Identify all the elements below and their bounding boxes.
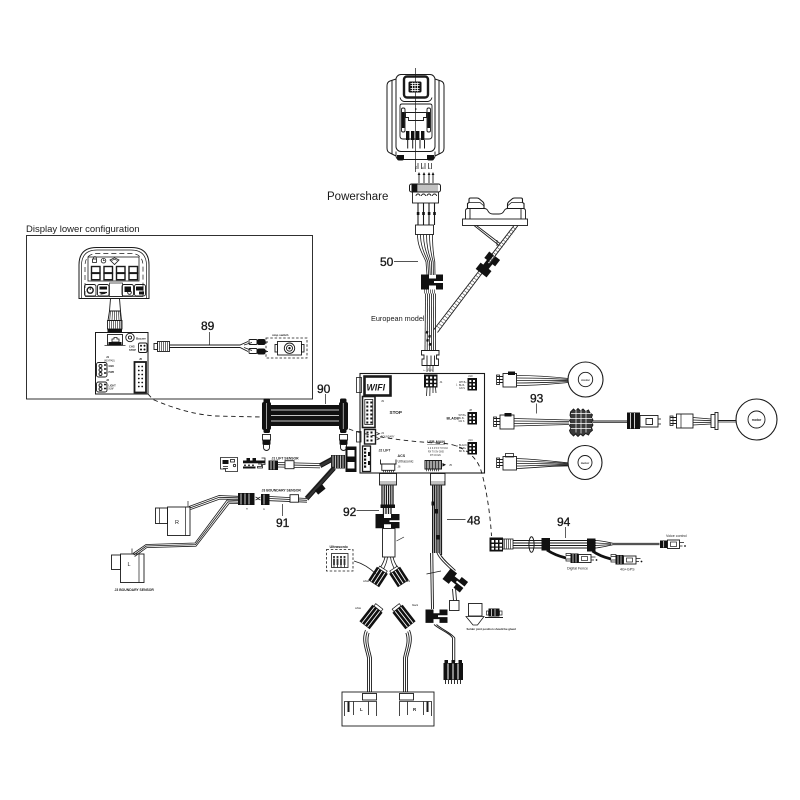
svg-text:white: white	[355, 606, 362, 610]
svg-text:B+: B+	[414, 165, 418, 169]
svg-text:Ultrasonic: Ultrasonic	[398, 460, 414, 464]
svg-text:J5: J5	[449, 463, 452, 467]
svg-text:48: 48	[467, 514, 481, 528]
svg-text:GN S: GN S	[459, 420, 465, 423]
svg-text:J9: J9	[381, 399, 384, 403]
svg-text:L: L	[128, 562, 131, 568]
svg-text:J6: J6	[398, 465, 401, 469]
svg-text:RX TX 5V GND: RX TX 5V GND	[428, 452, 444, 454]
svg-text:DT CK EN: DT CK EN	[430, 455, 441, 457]
svg-text:motor: motor	[581, 378, 590, 382]
svg-text:WIFI: WIFI	[367, 383, 386, 393]
svg-text:1 2 3 4 5 6 7 8 9 10: 1 2 3 4 5 6 7 8 9 10	[428, 448, 449, 450]
svg-text:STOP: STOP	[390, 410, 402, 415]
svg-text:STOP: STOP	[129, 348, 136, 352]
svg-text:90: 90	[317, 382, 331, 396]
svg-text:J5: J5	[139, 357, 143, 361]
svg-text:89: 89	[201, 319, 215, 333]
svg-text:Ultrasonic: Ultrasonic	[330, 545, 349, 549]
svg-text:ACS: ACS	[398, 454, 406, 458]
svg-text:50: 50	[380, 255, 394, 269]
svg-text:J3 BOUNDARY SENSOR: J3 BOUNDARY SENSOR	[262, 489, 302, 493]
svg-text:m: m	[246, 508, 248, 511]
svg-text:black: black	[404, 579, 411, 583]
svg-text:stop switch: stop switch	[272, 333, 289, 337]
svg-text:J3: J3	[381, 431, 384, 435]
svg-text:J10: J10	[468, 374, 473, 378]
svg-text:BK B-: BK B-	[459, 450, 465, 453]
svg-text:Solder joint position should b: Solder joint position should be glued	[467, 627, 517, 631]
svg-text:92: 92	[343, 505, 357, 519]
svg-text:GN S: GN S	[459, 387, 465, 390]
svg-text:white: white	[363, 579, 370, 583]
svg-text:J3 BOUNDARY SENSOR: J3 BOUNDARY SENSOR	[115, 588, 155, 592]
svg-text:black: black	[412, 603, 419, 607]
svg-text:motor: motor	[581, 461, 590, 465]
svg-text:B-: B-	[431, 368, 434, 371]
svg-text:94: 94	[557, 515, 571, 529]
svg-text:J1: J1	[106, 355, 110, 359]
svg-text:4G+GPS: 4G+GPS	[620, 568, 635, 572]
svg-text:B-: B-	[421, 166, 425, 169]
svg-text:GND: GND	[109, 365, 115, 368]
svg-text:J1: J1	[440, 380, 443, 384]
svg-text:Powershare: Powershare	[327, 191, 388, 203]
svg-text:93: 93	[530, 392, 544, 406]
svg-text:J1 LIFT SENSOR: J1 LIFT SENSOR	[272, 457, 300, 461]
svg-text:PWR: PWR	[109, 371, 115, 374]
svg-text:motor: motor	[752, 418, 762, 422]
svg-text:J14: J14	[468, 438, 473, 442]
svg-text:Digital Fence: Digital Fence	[567, 567, 588, 571]
svg-text:R: R	[456, 445, 458, 448]
svg-text:J8: J8	[469, 408, 472, 412]
svg-text:Buzzer: Buzzer	[136, 337, 147, 341]
svg-text:R: R	[175, 520, 179, 526]
svg-text:5.5V: 5.5V	[109, 388, 114, 391]
svg-text:J2: J2	[106, 378, 110, 382]
svg-text:J2 LIFT: J2 LIFT	[379, 449, 392, 453]
svg-text:L: L	[360, 707, 363, 712]
svg-text:European model: European model	[371, 314, 425, 323]
svg-text:Voice control: Voice control	[666, 534, 687, 538]
svg-text:(KEYPAD): (KEYPAD)	[104, 359, 115, 362]
svg-text:Display lower configuration: Display lower configuration	[26, 224, 140, 235]
svg-text:m: m	[263, 508, 265, 511]
svg-text:91: 91	[276, 516, 290, 530]
